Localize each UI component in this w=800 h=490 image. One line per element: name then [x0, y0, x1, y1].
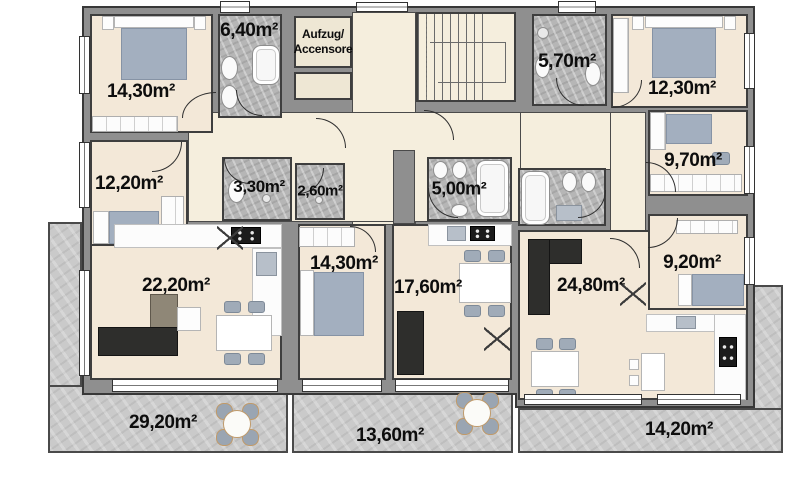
- window: [220, 1, 250, 13]
- sofa: [98, 327, 178, 356]
- hall-right-corridor: [610, 112, 646, 232]
- area-label-bedroom-9-20: 9,20m²: [663, 252, 721, 274]
- area-label-bath-5-70: 5,70m²: [538, 51, 596, 73]
- toilet: [221, 56, 238, 80]
- ceiling-fan-icon: [484, 326, 510, 352]
- area-label-bath-5-00: 5,00m²: [432, 179, 487, 200]
- floor-plan: Aufzug/ Accensore: [0, 0, 800, 490]
- chair: [464, 250, 481, 262]
- terrace-table: [223, 410, 251, 438]
- elevator-shaft: Aufzug/ Accensore: [294, 16, 352, 68]
- shelf: [676, 220, 738, 234]
- area-label-shower-2-60: 2,60m²: [297, 183, 342, 200]
- bed: [652, 28, 716, 78]
- area-label-terrace-29-20: 29,20m²: [129, 412, 197, 434]
- side-table: [641, 353, 665, 391]
- bed-side: [300, 270, 314, 336]
- stair-rail: [505, 42, 506, 83]
- dining-table: [216, 315, 272, 351]
- cooktop: [719, 337, 737, 367]
- wall-segment: [393, 150, 415, 224]
- terrace-table: [463, 399, 491, 427]
- area-label-room-14-30: 14,30m²: [310, 253, 378, 275]
- chair: [224, 301, 241, 313]
- bed: [666, 114, 712, 144]
- nightstand: [194, 16, 206, 30]
- area-label-bedroom-12-20: 12,20m²: [95, 173, 163, 195]
- toilet: [562, 172, 577, 192]
- area-label-living-24-80: 24,80m²: [557, 275, 625, 297]
- staircase: [416, 12, 516, 102]
- wardrobe: [650, 112, 666, 150]
- terrace-door-window: [302, 379, 382, 392]
- bathtub: [252, 45, 280, 85]
- closet: [92, 116, 178, 132]
- terrace-door-window: [395, 379, 509, 392]
- elevator-label-line2: Accensore: [294, 42, 353, 57]
- sofa: [528, 239, 550, 315]
- window: [744, 237, 755, 285]
- sofa: [397, 311, 424, 375]
- bidet: [221, 85, 238, 109]
- sofa-backrest: [150, 294, 178, 329]
- terrace-door-window: [524, 394, 642, 405]
- area-label-wc-3-30: 3,30m²: [233, 177, 284, 197]
- area-label-bedroom-12-30: 12,30m²: [648, 78, 716, 100]
- elevator-machine-box: [294, 72, 352, 100]
- chair: [248, 301, 265, 313]
- dining-table: [531, 351, 579, 387]
- bed-headboard: [93, 211, 109, 244]
- sink: [537, 27, 549, 39]
- area-label-terrace-14-20: 14,20m²: [645, 419, 713, 441]
- bed: [692, 274, 744, 306]
- chair: [629, 359, 639, 370]
- nightstand: [724, 16, 736, 30]
- window: [79, 142, 90, 208]
- window: [79, 36, 90, 94]
- window: [356, 2, 408, 12]
- chair: [248, 353, 265, 365]
- side-table: [177, 307, 201, 331]
- chair: [224, 353, 241, 365]
- bed: [121, 28, 187, 80]
- chair: [629, 375, 639, 386]
- kitchen-sink: [256, 252, 277, 276]
- area-label-room-17-60: 17,60m²: [394, 277, 462, 299]
- area-label-living-22-20: 22,20m²: [142, 275, 210, 297]
- bed-headboard: [645, 16, 723, 28]
- chair: [559, 338, 576, 350]
- stair-rail: [438, 82, 506, 83]
- toilet: [433, 161, 448, 179]
- area-label-bath-6-40: 6,40m²: [220, 20, 278, 42]
- window: [744, 146, 755, 194]
- window: [558, 1, 596, 13]
- bed: [314, 272, 364, 336]
- bed-headboard: [114, 16, 194, 28]
- ceiling-fan-icon: [217, 225, 243, 251]
- wardrobe: [299, 227, 355, 247]
- stair-treads: [418, 14, 488, 100]
- bed-headboard: [678, 274, 692, 306]
- area-label-bedroom-9-70: 9,70m²: [664, 150, 722, 172]
- kitchen-sink: [447, 226, 466, 241]
- dining-table: [459, 263, 511, 303]
- stair-rail: [430, 42, 506, 43]
- bathtub: [521, 171, 550, 225]
- window: [744, 33, 755, 89]
- terrace-door-window: [112, 379, 278, 392]
- bidet: [581, 172, 596, 192]
- kitchen-sink: [676, 316, 696, 329]
- elevator-label-line1: Aufzug/: [302, 27, 344, 42]
- terrace-door-window: [657, 394, 741, 405]
- bidet: [452, 161, 467, 179]
- nightstand: [632, 16, 644, 30]
- nightstand: [102, 16, 114, 30]
- chair: [464, 305, 481, 317]
- chair: [488, 250, 505, 262]
- cooktop: [470, 226, 495, 241]
- window: [79, 270, 90, 376]
- stair-guide-line: [426, 14, 427, 100]
- area-label-bedroom-14-30: 14,30m²: [107, 81, 175, 103]
- area-label-terrace-13-60: 13,60m²: [356, 425, 424, 447]
- chair: [488, 305, 505, 317]
- chair: [536, 338, 553, 350]
